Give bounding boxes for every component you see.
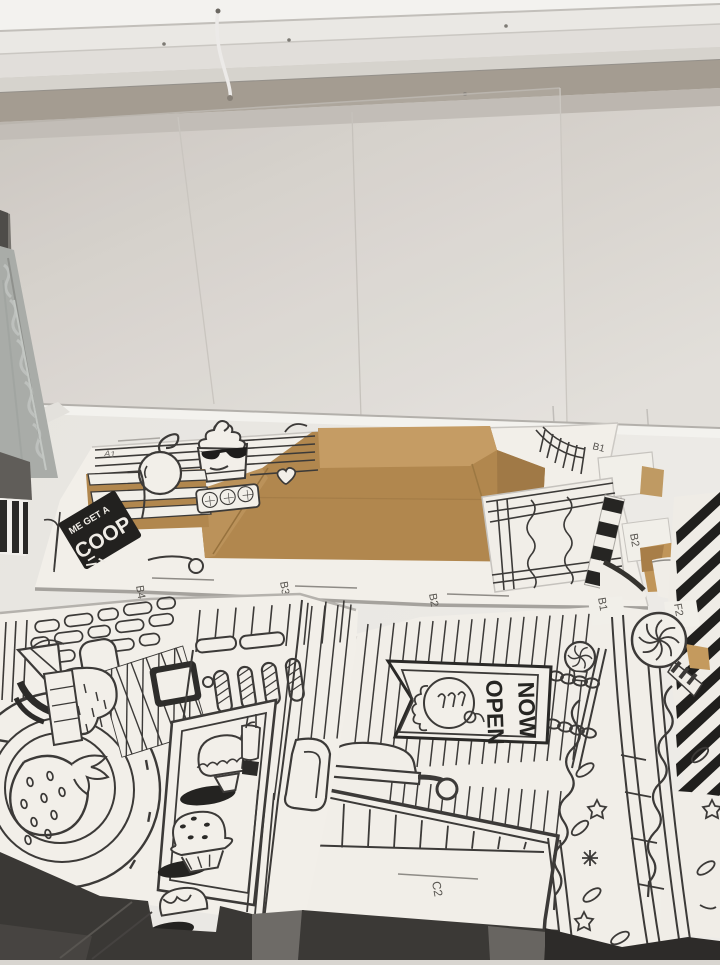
- svg-text:B4: B4: [133, 584, 147, 599]
- svg-text:C2: C2: [429, 880, 446, 898]
- svg-text:B1: B1: [595, 596, 609, 611]
- svg-text:B2: B2: [627, 532, 641, 547]
- svg-text:NOW: NOW: [513, 681, 541, 738]
- svg-text:OPEN: OPEN: [481, 679, 509, 745]
- svg-text:A1: A1: [104, 448, 117, 460]
- svg-text:F2: F2: [671, 602, 685, 617]
- svg-text:B2: B2: [426, 592, 440, 607]
